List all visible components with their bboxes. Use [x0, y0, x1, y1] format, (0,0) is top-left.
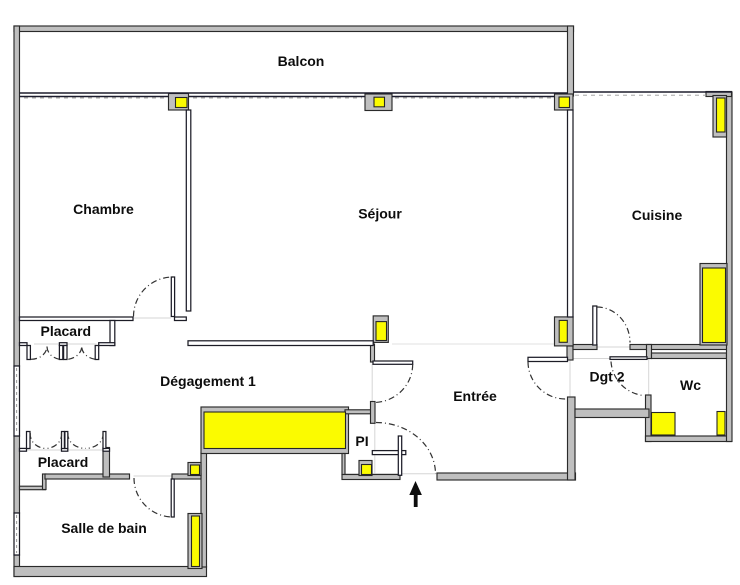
svg-text:PI: PI: [355, 433, 368, 449]
svg-text:Salle de bain: Salle de bain: [61, 520, 147, 536]
svg-text:Balcon: Balcon: [278, 53, 325, 69]
svg-text:Entrée: Entrée: [453, 388, 497, 404]
svg-text:Cuisine: Cuisine: [632, 207, 683, 223]
svg-text:Chambre: Chambre: [73, 201, 134, 217]
svg-text:Wc: Wc: [680, 377, 701, 393]
svg-text:Placard: Placard: [41, 323, 92, 339]
svg-text:Dégagement 1: Dégagement 1: [160, 373, 256, 389]
svg-text:Placard: Placard: [38, 454, 89, 470]
svg-text:Dgt 2: Dgt 2: [590, 369, 625, 385]
svg-text:Séjour: Séjour: [358, 206, 402, 222]
